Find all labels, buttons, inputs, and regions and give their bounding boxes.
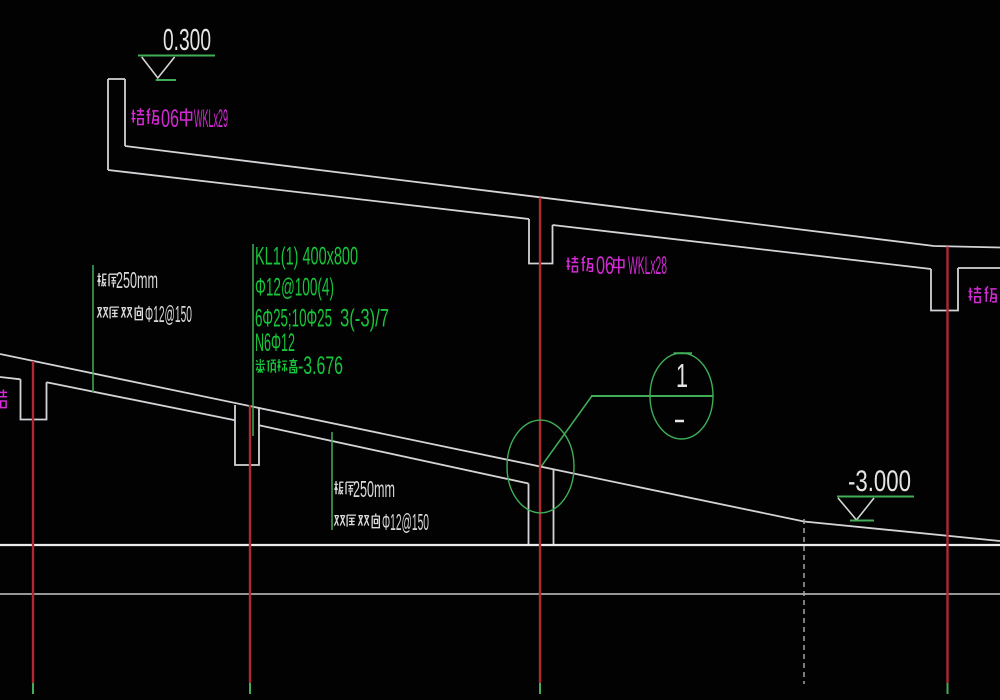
svg-text:06: 06 — [161, 105, 179, 133]
svg-text:250mm: 250mm — [353, 476, 395, 502]
svg-text:3(-3)/7: 3(-3)/7 — [340, 305, 389, 333]
svg-text:Φ12@150: Φ12@150 — [382, 509, 429, 535]
svg-text:0.300: 0.300 — [163, 22, 211, 57]
svg-text:1: 1 — [676, 357, 688, 394]
svg-text:WKLx29: WKLx29 — [194, 105, 228, 133]
svg-text:KL1(1) 400x800: KL1(1) 400x800 — [255, 243, 358, 271]
svg-text:06: 06 — [596, 252, 614, 280]
svg-text:Φ12@100(4): Φ12@100(4) — [255, 274, 334, 302]
svg-text:Φ12@150: Φ12@150 — [145, 301, 192, 327]
svg-text:WKLx28: WKLx28 — [628, 252, 667, 280]
svg-text:-3.676: -3.676 — [298, 352, 343, 380]
svg-text:-3.000: -3.000 — [848, 465, 911, 498]
svg-text:250mm: 250mm — [116, 267, 158, 293]
svg-text:N6Φ12: N6Φ12 — [255, 329, 295, 357]
